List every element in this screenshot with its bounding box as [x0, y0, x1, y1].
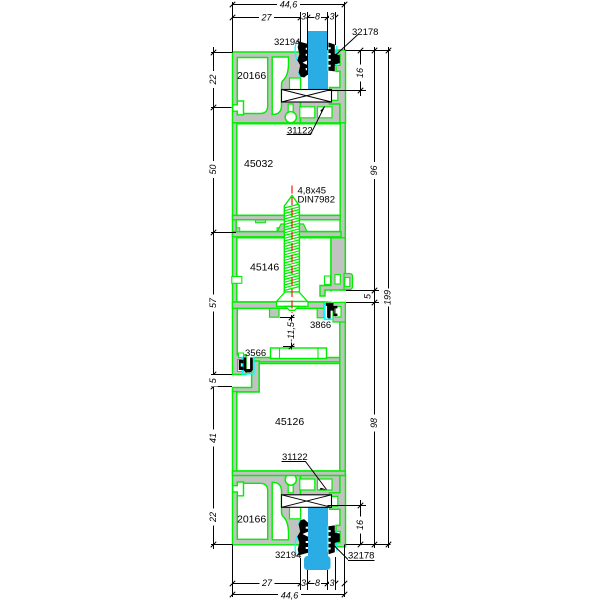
- svg-text:3: 3: [301, 12, 306, 22]
- svg-text:98: 98: [369, 418, 379, 428]
- svg-text:16: 16: [355, 68, 365, 78]
- svg-text:20166: 20166: [237, 70, 266, 82]
- svg-text:50: 50: [208, 164, 218, 174]
- svg-text:199: 199: [383, 290, 393, 305]
- svg-text:22: 22: [208, 74, 218, 85]
- svg-text:32194: 32194: [275, 550, 301, 561]
- svg-text:DIN7982: DIN7982: [298, 195, 336, 206]
- svg-text:16: 16: [355, 520, 365, 530]
- svg-text:57: 57: [208, 297, 218, 308]
- svg-text:96: 96: [369, 165, 379, 175]
- svg-text:32178: 32178: [352, 27, 378, 38]
- svg-text:3866: 3866: [310, 320, 331, 331]
- svg-text:8: 8: [315, 578, 320, 588]
- svg-text:32194: 32194: [274, 37, 300, 48]
- svg-text:22: 22: [208, 512, 218, 523]
- svg-text:8: 8: [315, 12, 320, 22]
- svg-text:45032: 45032: [244, 158, 273, 170]
- svg-text:3: 3: [329, 12, 334, 22]
- svg-text:45146: 45146: [250, 262, 279, 274]
- svg-text:32178: 32178: [348, 551, 374, 562]
- svg-text:41: 41: [208, 433, 218, 443]
- svg-text:-11,5: -11,5: [286, 321, 296, 342]
- svg-text:45126: 45126: [275, 416, 304, 428]
- svg-text:3: 3: [329, 578, 334, 588]
- svg-text:3: 3: [301, 578, 306, 588]
- svg-text:44,6: 44,6: [281, 591, 299, 600]
- svg-text:3566: 3566: [245, 348, 266, 359]
- svg-text:31122: 31122: [287, 126, 313, 137]
- svg-text:27: 27: [260, 13, 272, 23]
- svg-text:31122: 31122: [282, 452, 308, 463]
- svg-text:44,6: 44,6: [280, 0, 298, 10]
- svg-text:20166: 20166: [237, 514, 266, 526]
- svg-text:27: 27: [261, 578, 273, 588]
